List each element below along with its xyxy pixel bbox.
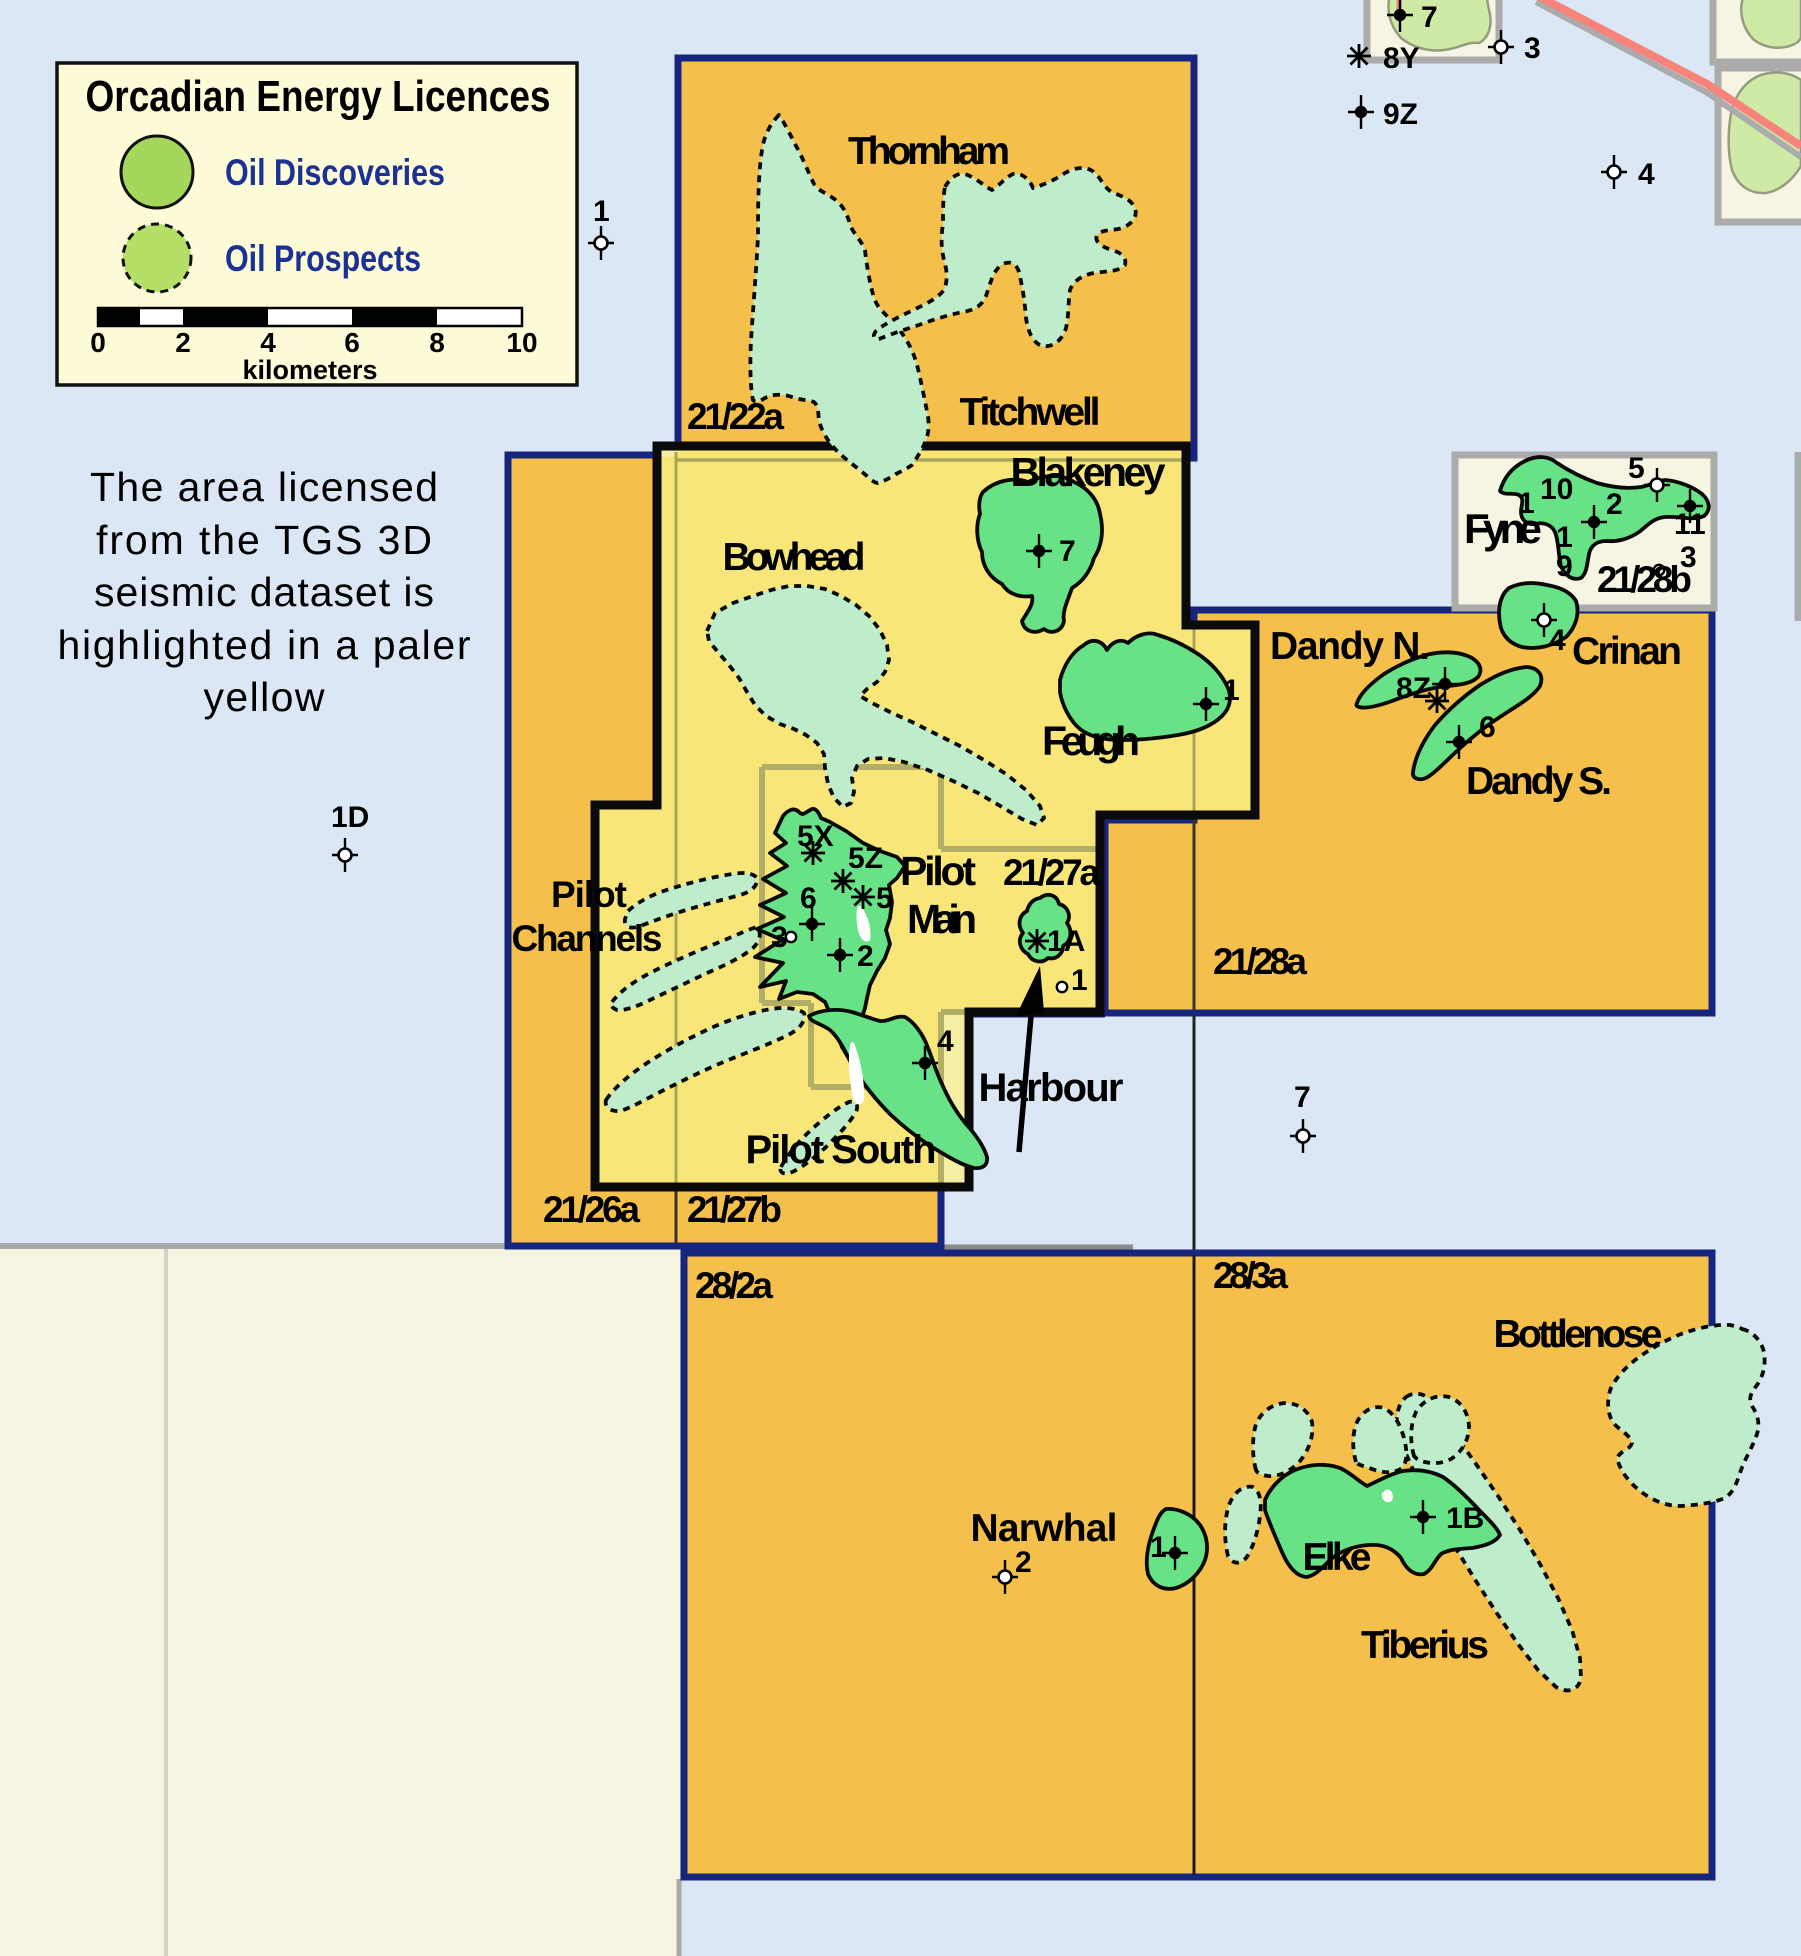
svg-text:21/22a: 21/22a	[687, 396, 784, 437]
svg-text:Pilot: Pilot	[900, 848, 976, 894]
svg-text:1: 1	[1518, 487, 1535, 520]
svg-text:9Z: 9Z	[1383, 98, 1418, 131]
svg-text:5X: 5X	[797, 820, 834, 853]
svg-text:6: 6	[1479, 711, 1496, 744]
svg-text:Pilot South: Pilot South	[746, 1128, 937, 1172]
svg-text:10: 10	[1540, 473, 1573, 506]
svg-text:Dandy N.: Dandy N.	[1270, 625, 1430, 668]
svg-text:2: 2	[175, 327, 191, 358]
svg-text:7: 7	[1294, 1081, 1311, 1114]
svg-text:21/28b: 21/28b	[1597, 559, 1692, 600]
svg-text:3: 3	[771, 921, 788, 954]
svg-text:Blakeney: Blakeney	[1011, 449, 1166, 495]
svg-text:11: 11	[1674, 508, 1706, 541]
svg-text:1: 1	[1071, 964, 1088, 997]
svg-text:28/2a: 28/2a	[695, 1265, 773, 1306]
svg-text:Tiberius: Tiberius	[1361, 1624, 1489, 1667]
svg-text:Feugh: Feugh	[1042, 718, 1140, 764]
svg-text:2: 2	[1606, 488, 1623, 521]
svg-text:from the TGS 3D: from the TGS 3D	[96, 517, 432, 563]
svg-text:3: 3	[1524, 32, 1541, 65]
svg-text:10: 10	[506, 327, 537, 358]
svg-text:Crinan: Crinan	[1572, 630, 1682, 673]
svg-text:6: 6	[344, 327, 360, 358]
svg-text:5: 5	[876, 882, 893, 915]
svg-text:Dandy S.: Dandy S.	[1466, 760, 1612, 803]
svg-text:6: 6	[800, 882, 817, 915]
svg-text:1: 1	[1223, 674, 1240, 707]
svg-text:21/26a: 21/26a	[543, 1189, 640, 1230]
svg-text:4: 4	[937, 1025, 954, 1058]
svg-text:kilometers: kilometers	[242, 355, 377, 385]
svg-text:2: 2	[857, 940, 874, 973]
svg-text:Titchwell: Titchwell	[960, 391, 1101, 434]
svg-text:5: 5	[1628, 452, 1645, 485]
svg-text:21/27a: 21/27a	[1003, 852, 1100, 893]
svg-text:4: 4	[260, 327, 276, 358]
svg-text:8: 8	[429, 327, 445, 358]
svg-text:8Y: 8Y	[1383, 42, 1420, 75]
svg-text:1: 1	[1150, 1531, 1167, 1564]
svg-text:highlighted in a paler: highlighted in a paler	[58, 622, 471, 668]
svg-text:Main: Main	[907, 896, 977, 942]
svg-text:Bottlenose: Bottlenose	[1494, 1313, 1663, 1356]
svg-text:Bowhead: Bowhead	[723, 536, 866, 579]
svg-text:4: 4	[1549, 624, 1566, 657]
svg-text:Narwhal: Narwhal	[971, 1507, 1118, 1550]
svg-text:21/27b: 21/27b	[687, 1189, 782, 1230]
svg-text:Pilot: Pilot	[551, 874, 627, 915]
svg-text:0: 0	[90, 327, 106, 358]
svg-text:1B: 1B	[1446, 1502, 1484, 1535]
svg-text:1A: 1A	[1047, 925, 1085, 958]
svg-text:Elke: Elke	[1303, 1536, 1372, 1579]
svg-text:Channels: Channels	[512, 918, 663, 959]
svg-text:Orcadian Energy Licences: Orcadian Energy Licences	[86, 72, 551, 121]
svg-text:1D: 1D	[331, 801, 369, 834]
svg-text:7: 7	[1059, 535, 1076, 568]
svg-text:yellow: yellow	[204, 674, 325, 720]
svg-text:4: 4	[1638, 158, 1655, 191]
svg-text:21/28a: 21/28a	[1213, 941, 1307, 982]
svg-text:3: 3	[1680, 541, 1697, 574]
svg-text:Oil Discoveries: Oil Discoveries	[225, 152, 445, 193]
svg-text:Oil Prospects: Oil Prospects	[225, 238, 421, 279]
svg-text:2: 2	[1015, 1546, 1032, 1579]
svg-text:seismic dataset is: seismic dataset is	[94, 569, 434, 615]
svg-text:9: 9	[1556, 550, 1573, 583]
svg-text:Harbour: Harbour	[979, 1066, 1124, 1110]
svg-text:7: 7	[1421, 1, 1438, 34]
svg-text:1: 1	[593, 195, 610, 228]
svg-text:28/3a: 28/3a	[1213, 1255, 1288, 1296]
svg-text:5Z: 5Z	[848, 842, 883, 875]
svg-text:8Z: 8Z	[1396, 672, 1431, 705]
svg-text:Thornham: Thornham	[848, 130, 1010, 173]
